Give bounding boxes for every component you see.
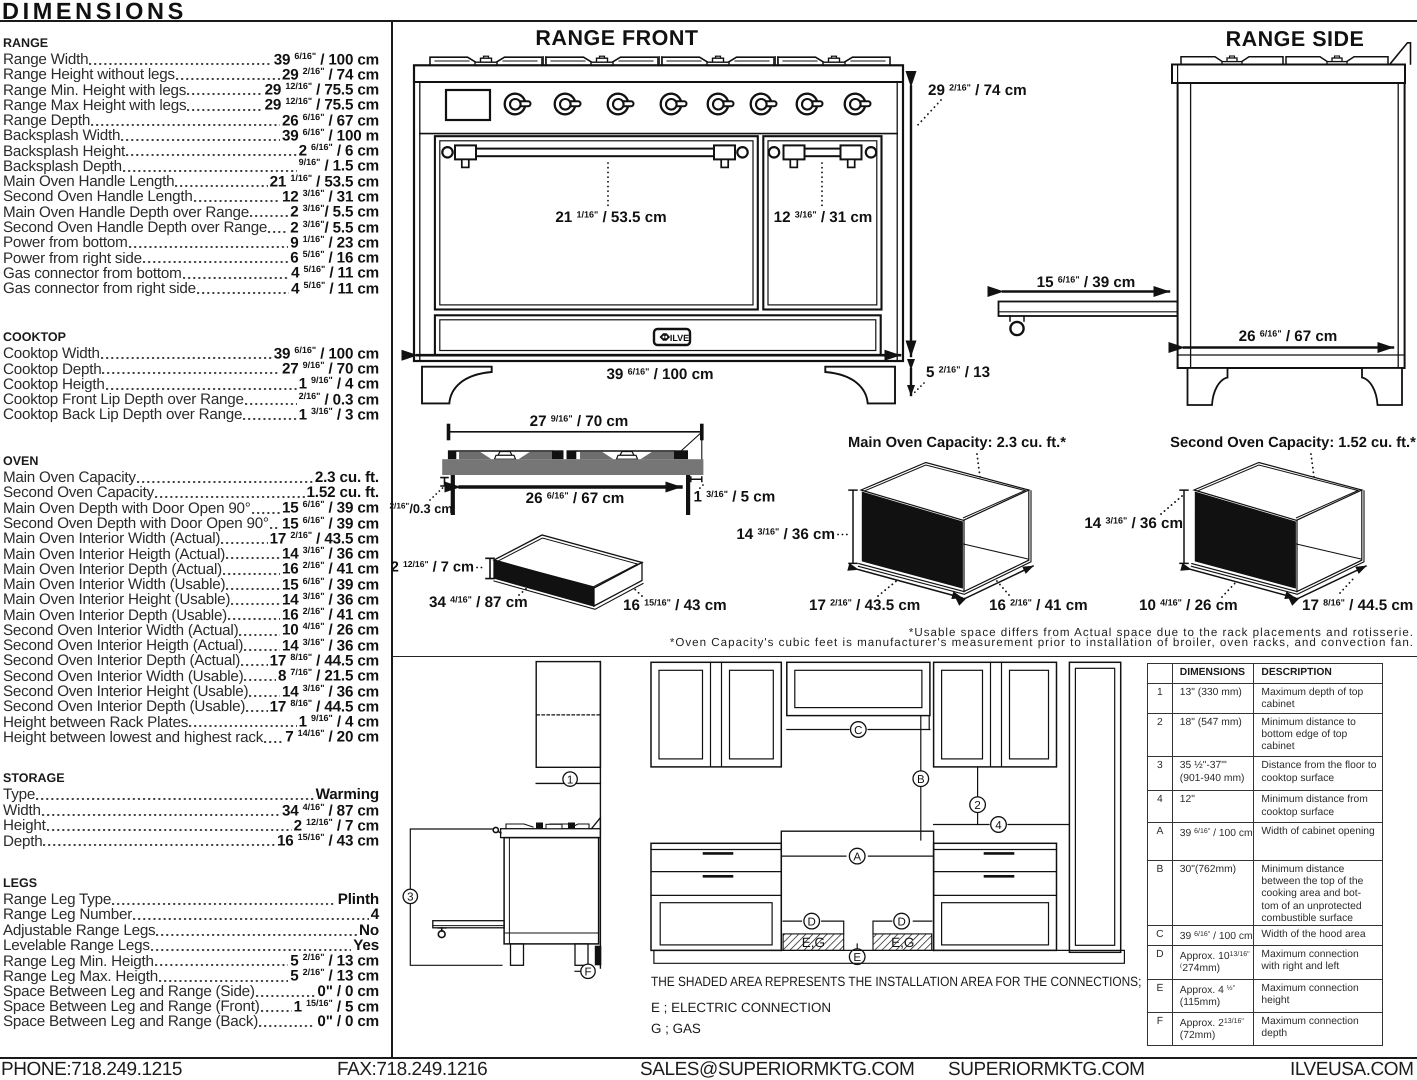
svg-text:F: F (584, 967, 591, 979)
svg-text:D: D (808, 916, 816, 928)
svg-text:E,G: E,G (802, 935, 825, 950)
svg-text:14 3/16" / 36 cm: 14 3/16" / 36 cm (736, 526, 835, 543)
svg-text:E,G: E,G (891, 935, 914, 950)
svg-text:17 2/16" / 43.5 cm: 17 2/16" / 43.5 cm (809, 597, 920, 614)
svg-text:Second Oven Capacity: 1.52 cu.: Second Oven Capacity: 1.52 cu. ft.* (1170, 435, 1416, 451)
svg-text:B: B (917, 774, 925, 786)
svg-text:27 9/16" / 70 cm: 27 9/16" / 70 cm (530, 413, 629, 430)
svg-text:2 12/16" / 7 cm: 2 12/16" / 7 cm (391, 559, 474, 576)
svg-text:E: E (853, 952, 861, 964)
svg-text:2: 2 (974, 800, 980, 812)
svg-text:4: 4 (995, 820, 1002, 832)
svg-text:RANGE SIDE: RANGE SIDE (1226, 27, 1365, 51)
svg-text:16 15/16" / 43 cm: 16 15/16" / 43 cm (623, 597, 727, 614)
svg-text:1: 1 (567, 774, 573, 786)
svg-text:3: 3 (407, 892, 413, 904)
svg-text:C: C (854, 725, 862, 737)
svg-text:12 3/16" / 31 cm: 12 3/16" / 31 cm (774, 209, 873, 226)
svg-text:34 4/16" / 87 cm: 34 4/16" / 87 cm (429, 594, 528, 611)
svg-text:15 6/16" / 39 cm: 15 6/16" / 39 cm (1037, 274, 1136, 291)
svg-text:2/16"/0.3 cm: 2/16"/0.3 cm (390, 501, 453, 516)
svg-text:21 1/16" / 53.5 cm: 21 1/16" / 53.5 cm (555, 209, 666, 226)
svg-text:16 2/16" / 41 cm: 16 2/16" / 41 cm (989, 597, 1088, 614)
svg-text:D: D (897, 916, 905, 928)
svg-text:Main Oven Capacity: 2.3 cu. ft: Main Oven Capacity: 2.3 cu. ft.* (848, 435, 1066, 451)
svg-text:29 2/16" / 74 cm: 29 2/16" / 74 cm (928, 82, 1027, 99)
svg-text:RANGE FRONT: RANGE FRONT (535, 26, 698, 50)
svg-text:10 4/16" / 26 cm: 10 4/16" / 26 cm (1139, 597, 1238, 614)
svg-text:14 3/16" / 36 cm: 14 3/16" / 36 cm (1084, 515, 1183, 532)
svg-text:26 6/16" / 67 cm: 26 6/16" / 67 cm (526, 490, 625, 507)
svg-text:ILVE: ILVE (670, 333, 689, 343)
svg-text:17 8/16" / 44.5 cm: 17 8/16" / 44.5 cm (1302, 597, 1413, 614)
svg-text:1 3/16" / 5 cm: 1 3/16" / 5 cm (694, 489, 776, 506)
svg-text:5 2/16" / 13: 5 2/16" / 13 (926, 364, 990, 381)
svg-text:A: A (853, 851, 861, 863)
svg-text:26 6/16" / 67 cm: 26 6/16" / 67 cm (1239, 328, 1338, 345)
svg-text:39 6/16" / 100 cm: 39 6/16" / 100 cm (606, 366, 713, 383)
